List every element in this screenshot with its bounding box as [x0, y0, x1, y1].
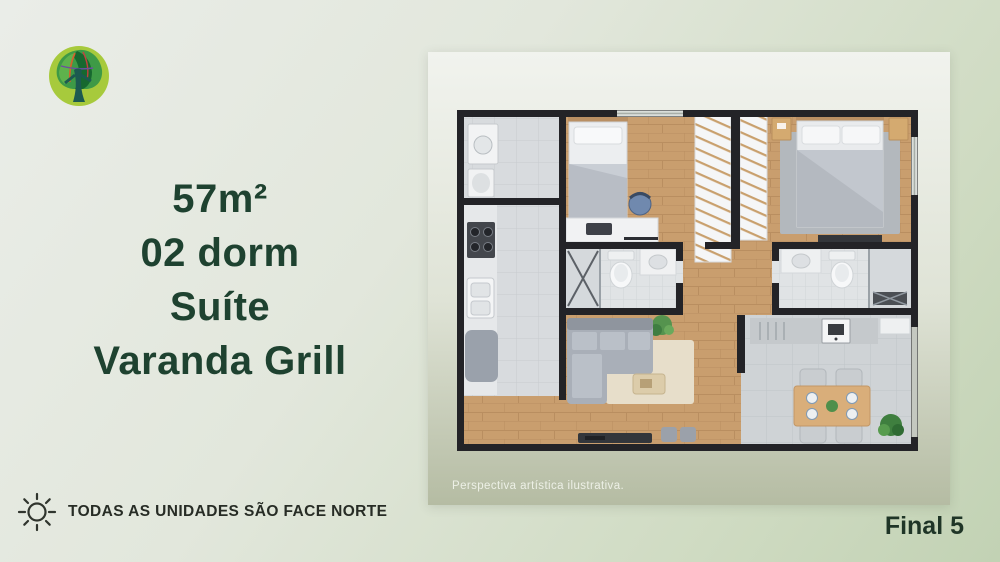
- unit-specs-headline: 57m² 02 dorm Suíte Varanda Grill: [20, 172, 420, 388]
- spec-area: 57m²: [20, 172, 420, 226]
- slide: 57m² 02 dorm Suíte Varanda Grill: [0, 0, 1000, 562]
- wardrobe-suite: [740, 114, 767, 240]
- unit-final-label: Final 5: [885, 512, 964, 541]
- orientation-note: TODAS AS UNIDADES SÃO FACE NORTE: [68, 503, 387, 521]
- spec-dorms: 02 dorm: [20, 226, 420, 280]
- orientation-footer: TODAS AS UNIDADES SÃO FACE NORTE: [16, 491, 387, 533]
- suite-bedroom: [772, 115, 908, 242]
- tree-logo-icon: [47, 44, 111, 108]
- sun-icon: [16, 491, 58, 533]
- floorplan-image: Perspectiva artística ilustrativa.: [428, 52, 950, 505]
- kitchen-area: [464, 205, 498, 395]
- wardrobe-bedroom1: [695, 114, 731, 262]
- spec-varanda: Varanda Grill: [20, 334, 420, 388]
- floorplan-drawing: [428, 52, 950, 505]
- plan-caption: Perspectiva artística ilustrativa.: [452, 480, 624, 492]
- laundry-area: [468, 124, 498, 197]
- spec-suite: Suíte: [20, 280, 420, 334]
